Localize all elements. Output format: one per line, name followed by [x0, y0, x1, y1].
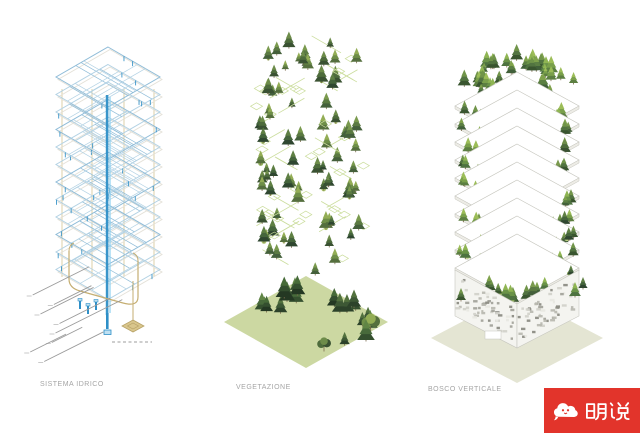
cloud-face-icon	[552, 399, 579, 422]
caption-sistema-idrico: SISTEMA IDRICO	[40, 381, 104, 388]
bosco-verticale-illustration	[425, 48, 620, 388]
figure-sistema-idrico	[22, 55, 222, 390]
vegetazione-illustration	[220, 50, 405, 380]
figure-bosco-verticale	[425, 48, 620, 388]
mingshuo-watermark-banner	[544, 388, 640, 433]
sistema-idrico-illustration	[22, 55, 222, 390]
caption-bosco-verticale: BOSCO VERTICALE	[428, 386, 502, 393]
poster-canvas: SISTEMA IDRICO VEGETAZIONE BOSCO VERTICA…	[0, 0, 640, 433]
figure-vegetazione	[220, 50, 405, 380]
caption-vegetazione: VEGETAZIONE	[236, 384, 291, 391]
mingshuo-logo-glyphs	[584, 400, 632, 422]
